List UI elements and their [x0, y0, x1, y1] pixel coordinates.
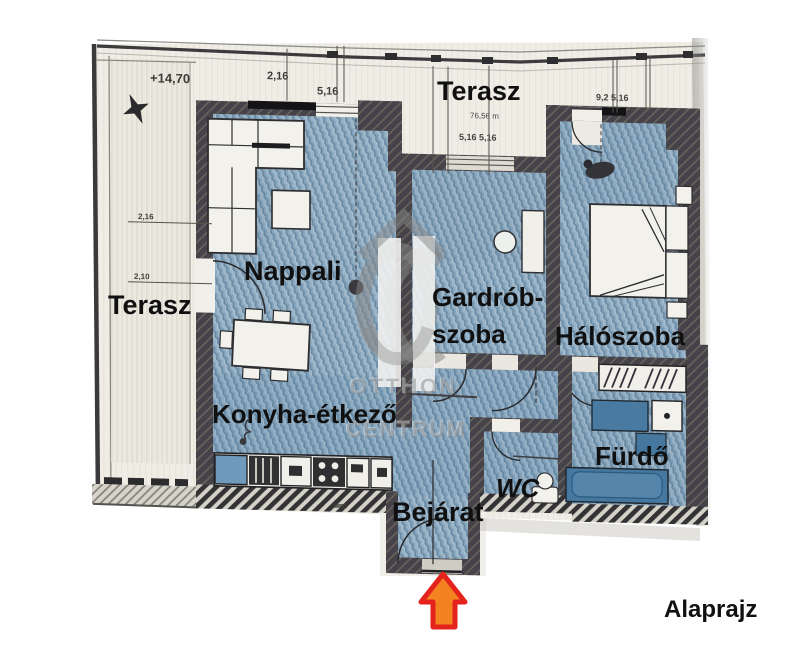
svg-text:9,2 5,16: 9,2 5,16 [596, 92, 629, 103]
svg-text:Fürdő: Fürdő [595, 441, 669, 471]
svg-text:Bejárat: Bejárat [392, 497, 484, 527]
svg-text:OTTHON: OTTHON [350, 374, 458, 399]
svg-text:Terasz: Terasz [437, 76, 521, 106]
svg-text:2,16: 2,16 [267, 70, 288, 83]
svg-text:Hálószoba: Hálószoba [555, 321, 686, 351]
svg-text:2,10: 2,10 [134, 272, 150, 281]
svg-text:5,16 5,16: 5,16 5,16 [459, 132, 497, 143]
svg-text:2,16: 2,16 [138, 212, 154, 221]
svg-text:szoba: szoba [432, 319, 506, 349]
svg-text:5,16: 5,16 [317, 85, 338, 98]
svg-text:Terasz: Terasz [108, 290, 192, 320]
svg-text:Gardrób-: Gardrób- [432, 282, 543, 312]
svg-text:Alaprajz: Alaprajz [664, 596, 757, 623]
svg-text:+14,70: +14,70 [150, 70, 190, 86]
svg-text:WC: WC [496, 473, 541, 503]
svg-text:Nappali: Nappali [244, 256, 342, 286]
svg-text:76,56 m: 76,56 m [470, 111, 499, 121]
svg-text:Konyha-étkező: Konyha-étkező [212, 399, 397, 429]
